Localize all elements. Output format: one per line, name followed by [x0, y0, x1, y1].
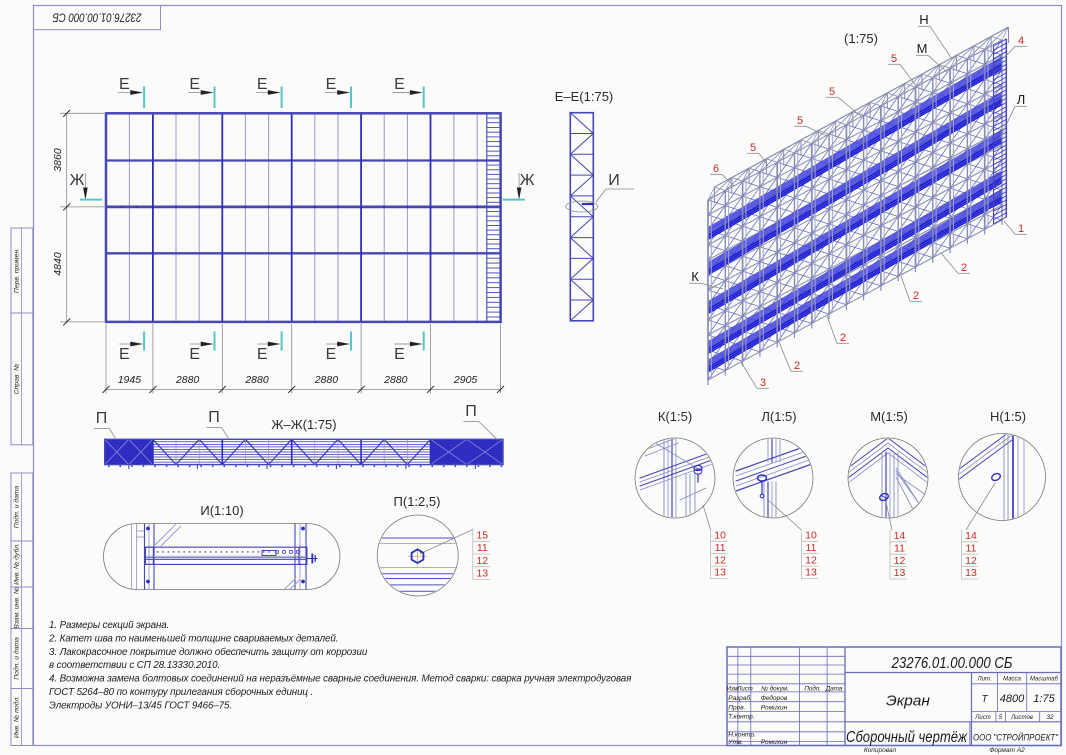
- svg-text:11: 11: [966, 542, 977, 554]
- svg-text:Перв. примен.: Перв. примен.: [14, 248, 21, 293]
- svg-text:6: 6: [713, 163, 719, 175]
- svg-text:Взам. инв. №: Взам. инв. №: [14, 587, 21, 629]
- svg-text:11: 11: [477, 542, 488, 554]
- svg-text:32: 32: [1046, 714, 1054, 721]
- svg-text:3. Лакокрасочное покрытие дол: 3. Лакокрасочное покрытие должно обеспеч…: [49, 647, 368, 658]
- svg-text:Сборочный чертёж: Сборочный чертёж: [846, 729, 968, 746]
- svg-text:П: П: [208, 409, 220, 426]
- svg-text:М: М: [917, 41, 928, 56]
- svg-text:2880: 2880: [383, 374, 408, 386]
- svg-text:Н.контр.: Н.контр.: [728, 731, 756, 738]
- svg-text:4800: 4800: [1000, 693, 1025, 705]
- svg-text:К(1:5): К(1:5): [658, 409, 692, 424]
- svg-text:2. Катет шва по наименьшей тол: 2. Катет шва по наименьшей толщине свари…: [48, 633, 338, 644]
- svg-text:Е: Е: [326, 346, 337, 363]
- svg-text:Ж: Ж: [520, 172, 535, 189]
- svg-text:Е: Е: [394, 346, 405, 363]
- svg-text:Инв. № подл.: Инв. № подл.: [13, 696, 21, 738]
- svg-text:13: 13: [476, 568, 488, 580]
- svg-text:Экран: Экран: [886, 693, 930, 710]
- svg-text:2: 2: [961, 262, 967, 274]
- svg-text:Подп.: Подп.: [804, 685, 821, 693]
- svg-text:ООО "СТРОЙПРОЕКТ": ООО "СТРОЙПРОЕКТ": [973, 732, 1059, 744]
- svg-text:Формат А2: Формат А2: [989, 747, 1025, 754]
- svg-text:Масштаб: Масштаб: [1030, 677, 1059, 683]
- svg-text:Федоров: Федоров: [761, 694, 788, 702]
- svg-text:23276.01.00.000 СБ: 23276.01.00.000 СБ: [891, 655, 1013, 672]
- svg-text:ГОСТ 5264–80 по контуру прилег: ГОСТ 5264–80 по контуру прилегания сборо…: [49, 687, 313, 698]
- svg-text:5: 5: [797, 115, 803, 127]
- svg-text:1945: 1945: [118, 374, 142, 386]
- svg-text:Ромихин: Ромихин: [761, 704, 788, 711]
- svg-text:2: 2: [913, 290, 919, 302]
- svg-text:5: 5: [750, 142, 756, 154]
- svg-text:11: 11: [894, 542, 905, 554]
- svg-text:1:75: 1:75: [1033, 693, 1055, 705]
- svg-text:Утв.: Утв.: [727, 739, 743, 746]
- svg-text:Е: Е: [119, 346, 130, 363]
- svg-text:5: 5: [829, 86, 835, 98]
- svg-text:2880: 2880: [175, 374, 200, 386]
- svg-text:Лист: Лист: [974, 715, 990, 721]
- svg-text:2880: 2880: [244, 374, 269, 386]
- svg-text:5: 5: [999, 714, 1003, 721]
- svg-text:Е: Е: [394, 76, 405, 93]
- svg-text:И(1:10): И(1:10): [200, 503, 243, 518]
- svg-text:в соответствии с СП 28.13330.: в соответствии с СП 28.13330.2010.: [49, 660, 220, 671]
- svg-text:Н: Н: [919, 12, 928, 27]
- svg-text:Электроды УОНИ–13/45 ГОСТ 9466: Электроды УОНИ–13/45 ГОСТ 9466–75.: [49, 700, 232, 711]
- svg-text:12: 12: [894, 555, 906, 567]
- svg-text:12: 12: [714, 554, 726, 566]
- svg-text:10: 10: [805, 530, 817, 542]
- svg-text:Инв. № дубл.: Инв. № дубл.: [13, 543, 21, 585]
- svg-text:10: 10: [714, 530, 726, 542]
- svg-text:П: П: [465, 403, 477, 420]
- svg-text:Е: Е: [326, 76, 337, 93]
- svg-text:12: 12: [476, 555, 488, 567]
- svg-text:13: 13: [714, 567, 726, 579]
- svg-text:Ж–Ж(1:75): Ж–Ж(1:75): [271, 417, 336, 432]
- svg-text:4840: 4840: [52, 252, 64, 276]
- svg-text:1: 1: [1018, 223, 1024, 235]
- svg-text:3: 3: [760, 377, 766, 389]
- svg-text:Разраб.: Разраб.: [728, 694, 752, 702]
- svg-text:Е: Е: [189, 76, 200, 93]
- svg-text:Лит.: Лит.: [976, 677, 991, 683]
- svg-text:П: П: [96, 410, 108, 427]
- svg-text:14: 14: [894, 530, 906, 542]
- svg-text:Пров.: Пров.: [728, 704, 745, 711]
- svg-text:Т.контр.: Т.контр.: [728, 713, 754, 720]
- svg-text:2: 2: [794, 360, 800, 372]
- svg-text:2880: 2880: [314, 374, 339, 386]
- svg-text:Дата: Дата: [825, 686, 843, 693]
- svg-text:И: И: [608, 172, 620, 189]
- svg-text:Масса: Масса: [1003, 677, 1021, 683]
- svg-text:М(1:5): М(1:5): [870, 409, 908, 424]
- svg-text:Подп. и дата: Подп. и дата: [13, 637, 21, 680]
- svg-text:11: 11: [715, 542, 726, 554]
- svg-text:15: 15: [476, 530, 488, 542]
- svg-text:4. Возможна замена болтовых с: 4. Возможна замена болтовых соединений н…: [49, 674, 632, 685]
- svg-text:11: 11: [806, 542, 817, 554]
- svg-text:Е: Е: [257, 346, 268, 363]
- svg-text:Ж: Ж: [70, 172, 85, 189]
- svg-text:Н(1:5): Н(1:5): [990, 409, 1026, 424]
- svg-text:13: 13: [894, 567, 906, 579]
- svg-text:Ромихин: Ромихин: [761, 739, 788, 746]
- svg-text:3860: 3860: [52, 148, 64, 172]
- svg-text:(1:75): (1:75): [844, 31, 878, 46]
- svg-text:13: 13: [965, 567, 977, 579]
- svg-text:Копировал: Копировал: [864, 747, 897, 754]
- svg-text:12: 12: [805, 554, 817, 566]
- svg-text:Т: Т: [981, 694, 988, 705]
- svg-text:Е–Е(1:75): Е–Е(1:75): [555, 89, 614, 104]
- svg-text:Л(1:5): Л(1:5): [761, 409, 796, 424]
- svg-text:Е: Е: [189, 346, 200, 363]
- svg-text:1. Размеры секций экрана.: 1. Размеры секций экрана.: [49, 620, 169, 631]
- svg-text:Е: Е: [119, 76, 130, 93]
- svg-text:23276.01.00.000 СБ: 23276.01.00.000 СБ: [52, 11, 142, 25]
- svg-text:Е: Е: [257, 76, 268, 93]
- svg-text:12: 12: [965, 555, 977, 567]
- svg-text:К: К: [691, 269, 699, 284]
- svg-text:2905: 2905: [453, 374, 478, 386]
- svg-text:Справ. №: Справ. №: [14, 363, 21, 394]
- svg-text:Л: Л: [1017, 92, 1026, 107]
- svg-text:Подп. и дата: Подп. и дата: [13, 486, 21, 529]
- svg-text:Листов: Листов: [1010, 715, 1033, 721]
- svg-text:№ докум.: № докум.: [761, 685, 789, 693]
- svg-text:4: 4: [1018, 35, 1024, 47]
- svg-text:П(1:2,5): П(1:2,5): [394, 494, 441, 509]
- svg-text:5: 5: [891, 53, 897, 65]
- svg-text:13: 13: [805, 567, 817, 579]
- svg-text:14: 14: [965, 530, 977, 542]
- svg-text:2: 2: [840, 332, 846, 344]
- svg-text:Лист: Лист: [736, 687, 752, 693]
